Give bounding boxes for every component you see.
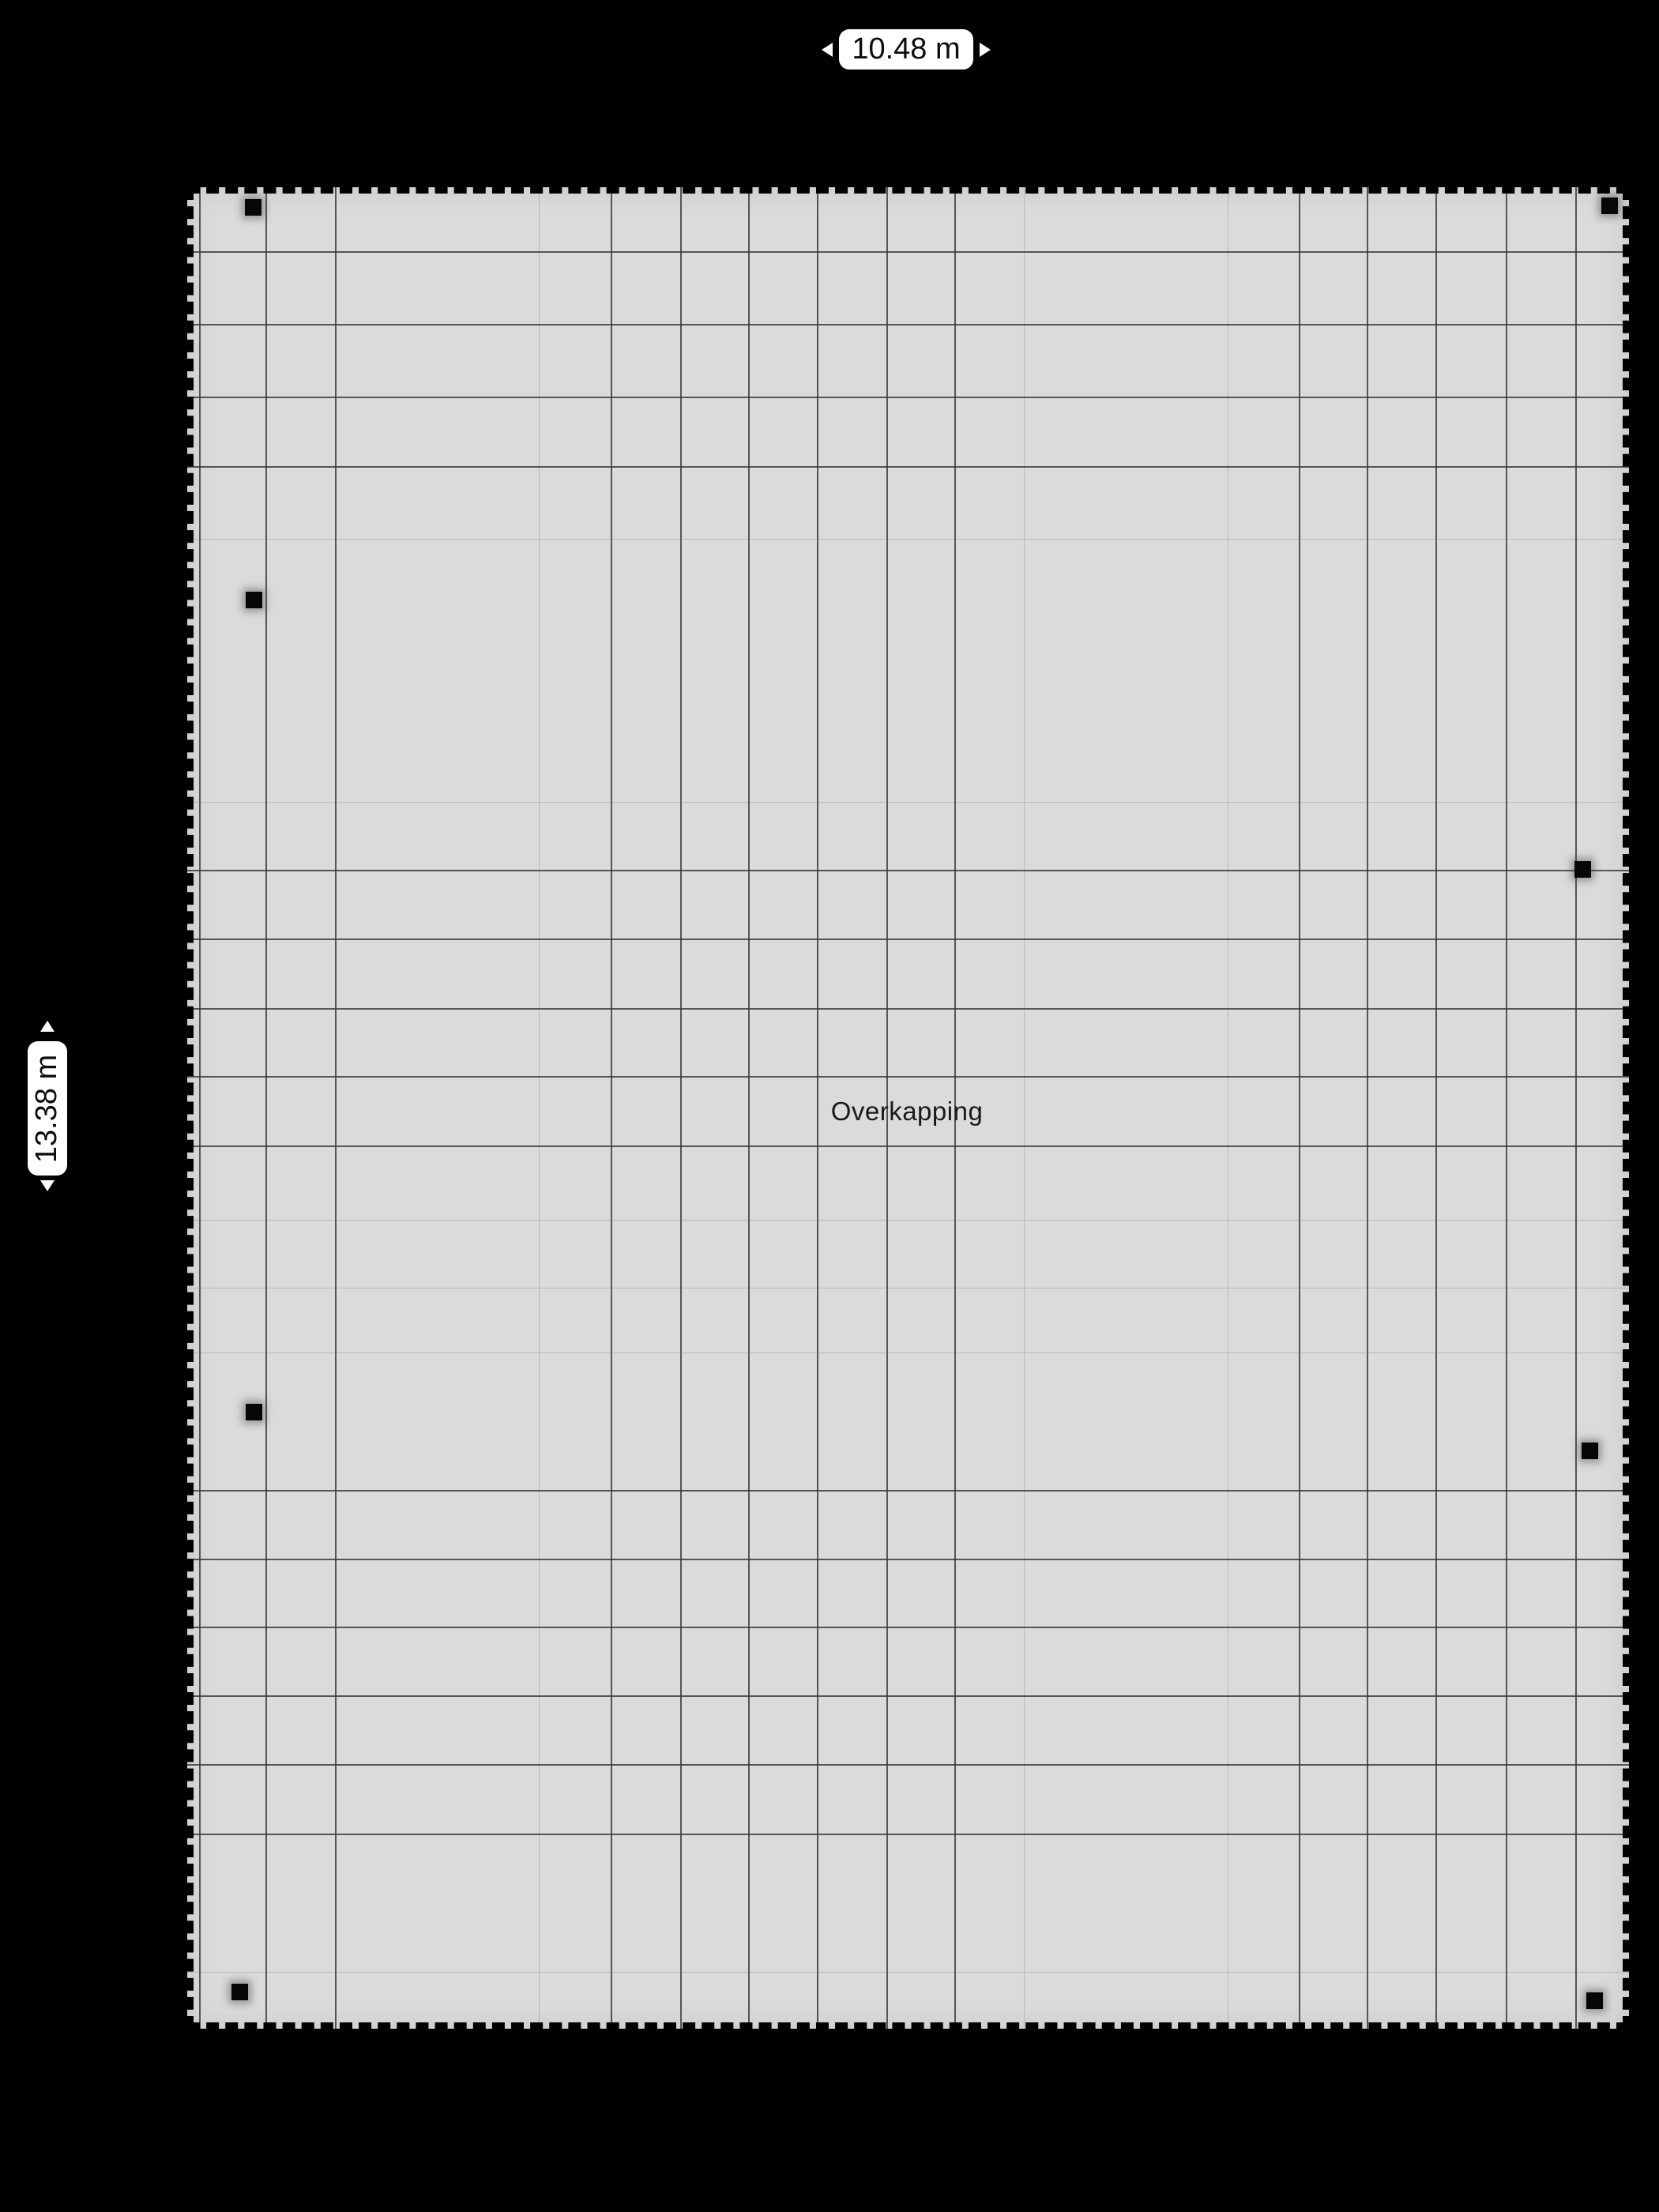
grid-line-vertical [611,187,612,2029]
grid-line-horizontal [187,1220,1629,1221]
post-marker[interactable] [1586,1992,1603,2009]
post-marker[interactable] [231,1984,248,2000]
width-dimension-badge: 10.48 m [839,29,973,70]
grid-line-vertical [748,187,750,2029]
canvas-background: 10.48 m 13.38 m Overkapping [0,0,1659,2212]
grid-line-horizontal [187,939,1629,940]
grid-line-horizontal [187,251,1629,253]
grid-line-horizontal [187,397,1629,398]
dimension-arrow-up-icon [40,1021,55,1032]
grid-line-vertical [1435,187,1437,2029]
grid-line-vertical [1228,187,1228,2029]
grid-line-horizontal [187,1834,1629,1835]
grid-line-vertical [335,187,337,2029]
grid-line-horizontal [187,1352,1629,1353]
grid-line-vertical [1575,187,1577,2029]
grid-line-horizontal [187,466,1629,468]
grid-line-vertical [539,187,540,2029]
grid-line-horizontal [187,1559,1629,1560]
post-marker[interactable] [246,592,262,608]
post-marker[interactable] [1601,197,1618,214]
grid-line-horizontal [187,870,1629,871]
post-marker[interactable] [1582,1443,1598,1459]
grid-line-horizontal [187,1972,1629,1973]
grid-line-horizontal [187,1145,1629,1147]
grid-line-vertical [680,187,682,2029]
grid-line-horizontal [187,1288,1629,1288]
grid-line-horizontal [187,1695,1629,1697]
dimension-arrow-down-icon [40,1180,55,1191]
grid-line-horizontal [187,539,1629,540]
grid-line-vertical [265,187,267,2029]
grid-line-horizontal [187,1627,1629,1628]
height-dimension-badge: 13.38 m [28,1041,67,1176]
grid-line-horizontal [187,1076,1629,1078]
dimension-arrow-right-icon [980,43,991,57]
dimension-arrow-left-icon [822,43,833,57]
width-dimension-value: 10.48 m [852,32,960,66]
height-dimension-value: 13.38 m [31,1054,65,1162]
plan-title: Overkapping [831,1097,984,1127]
grid-line-vertical [817,187,818,2029]
plan-area[interactable]: Overkapping [187,187,1629,2029]
grid-line-horizontal [187,802,1629,803]
post-marker[interactable] [245,199,261,216]
grid-line-vertical [1506,187,1507,2029]
grid-line-horizontal [187,1764,1629,1766]
grid-line-vertical [1024,187,1025,2029]
grid-line-horizontal [187,324,1629,325]
post-marker[interactable] [1574,861,1591,878]
grid-line-vertical [199,187,201,2029]
grid-line-horizontal [187,1490,1629,1492]
post-marker[interactable] [246,1404,262,1420]
grid-line-vertical [1299,187,1300,2029]
grid-line-horizontal [187,1008,1629,1010]
grid-line-vertical [1367,187,1368,2029]
